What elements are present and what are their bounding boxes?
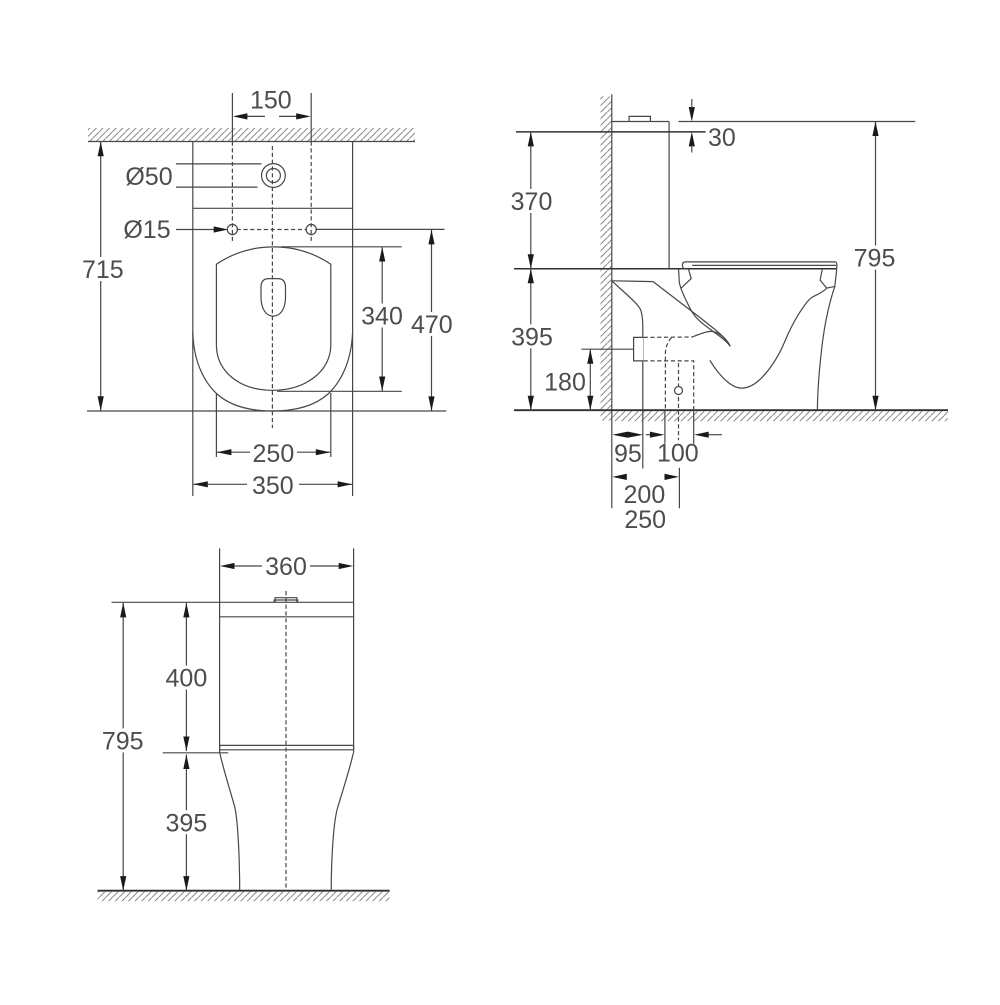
- svg-text:395: 395: [166, 809, 208, 837]
- svg-text:340: 340: [361, 302, 403, 330]
- svg-text:Ø50: Ø50: [125, 163, 172, 191]
- svg-text:360: 360: [265, 553, 307, 581]
- svg-text:Ø15: Ø15: [123, 216, 170, 244]
- svg-text:100: 100: [657, 440, 699, 468]
- svg-text:795: 795: [102, 727, 144, 755]
- svg-text:150: 150: [250, 86, 292, 114]
- svg-text:30: 30: [708, 124, 736, 152]
- svg-text:715: 715: [82, 256, 124, 284]
- svg-text:180: 180: [544, 369, 586, 397]
- svg-text:470: 470: [411, 311, 453, 339]
- svg-text:400: 400: [166, 665, 208, 693]
- svg-text:350: 350: [252, 472, 294, 500]
- svg-text:250: 250: [253, 440, 295, 468]
- svg-text:95: 95: [614, 440, 642, 468]
- svg-text:795: 795: [854, 245, 896, 273]
- svg-text:370: 370: [511, 188, 553, 216]
- svg-text:395: 395: [511, 323, 553, 351]
- svg-text:200: 200: [624, 481, 666, 509]
- svg-text:250: 250: [624, 506, 666, 534]
